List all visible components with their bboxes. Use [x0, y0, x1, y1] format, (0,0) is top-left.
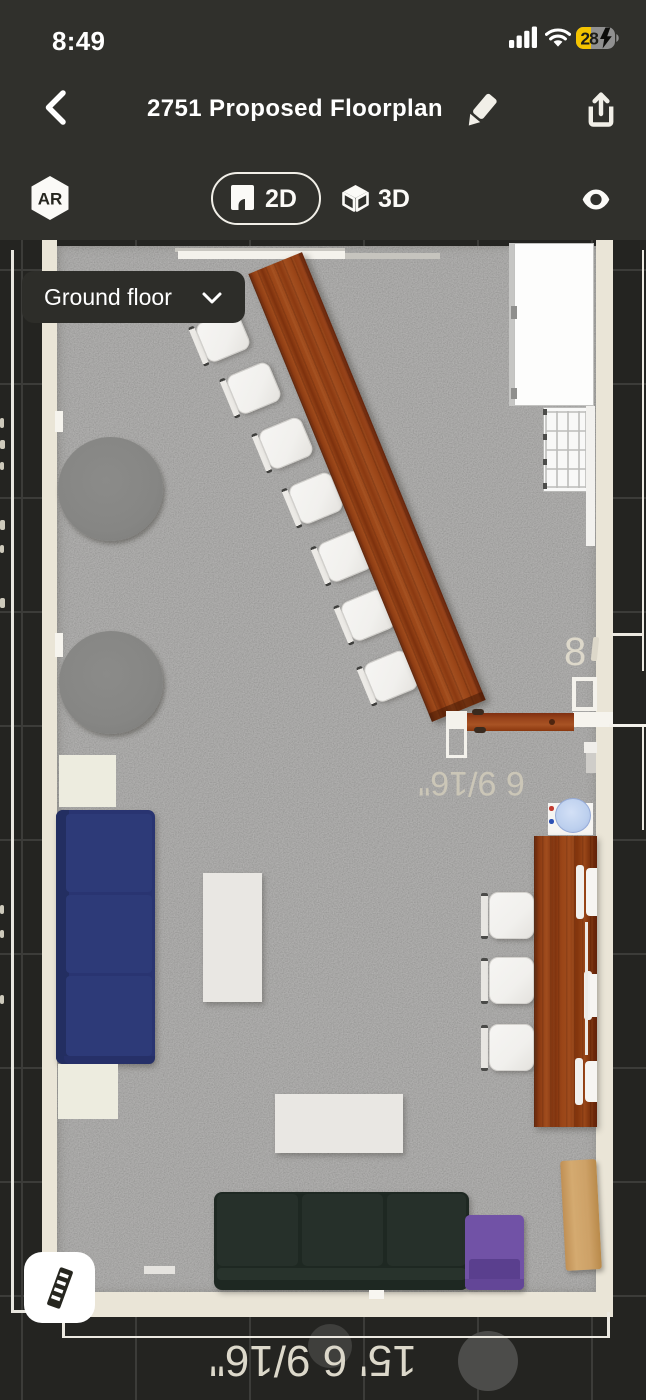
svg-text:28: 28 [580, 29, 599, 49]
svg-text:AR: AR [38, 190, 63, 209]
